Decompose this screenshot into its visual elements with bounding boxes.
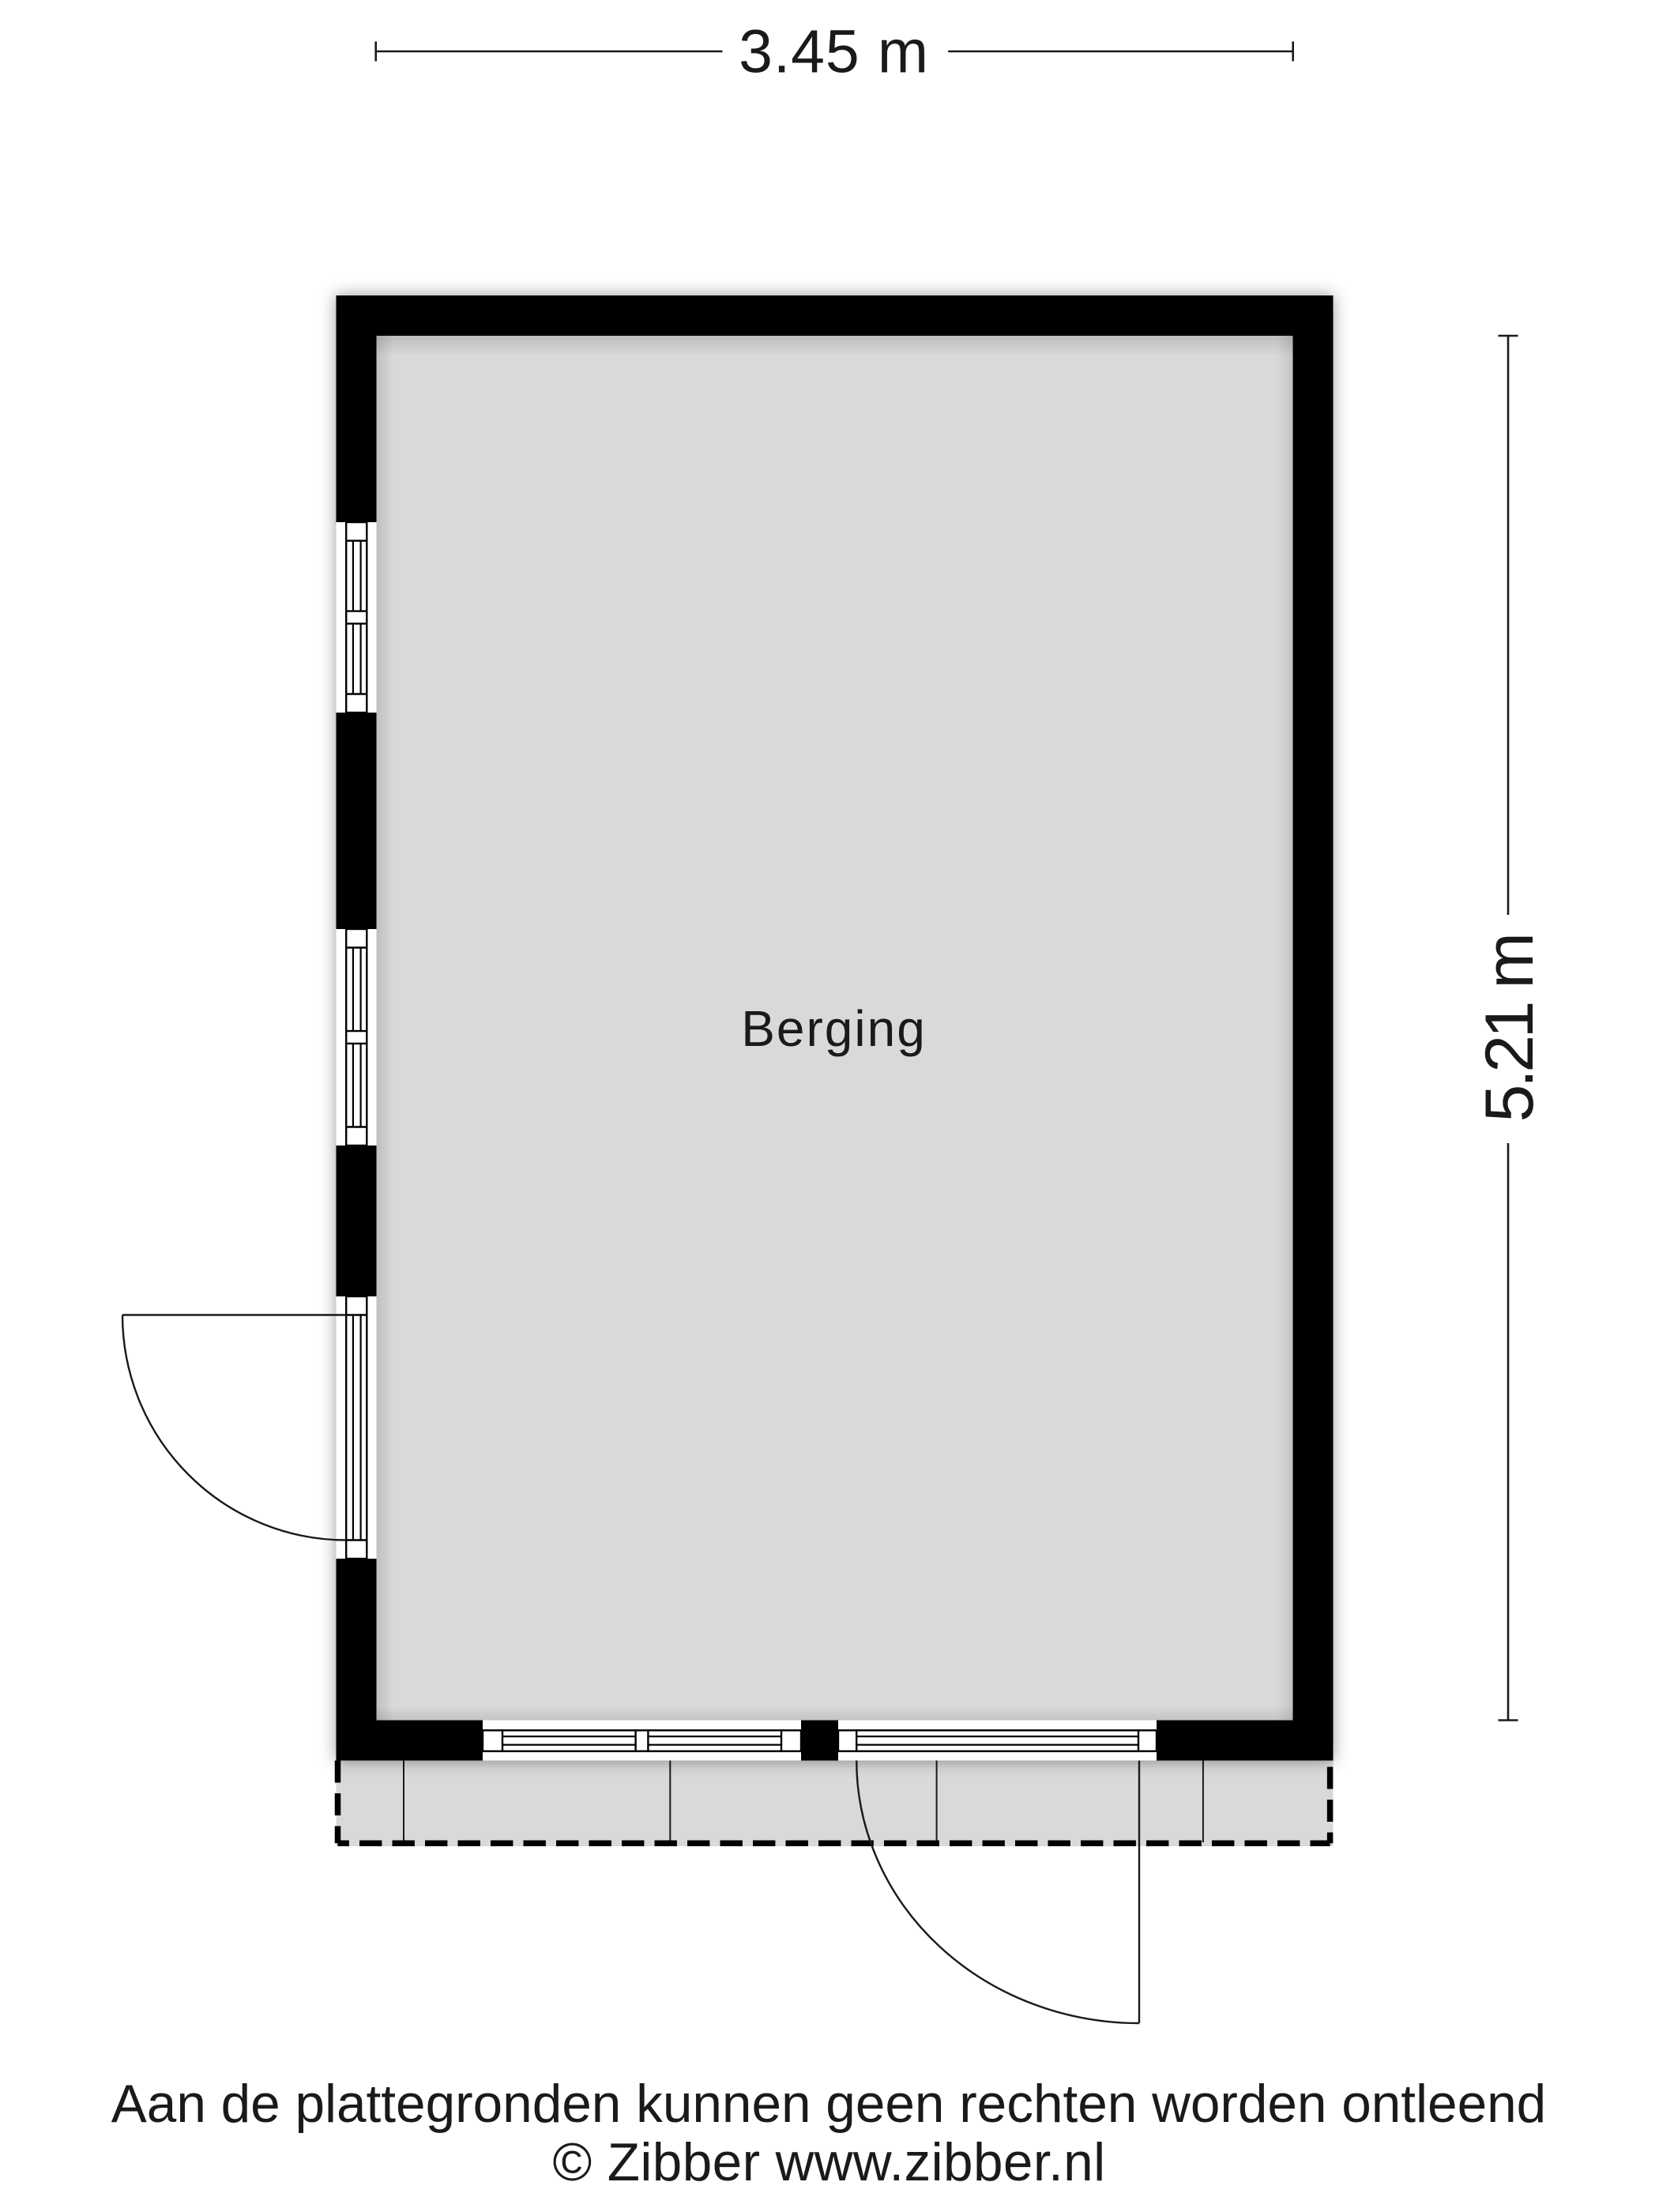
svg-text:Aan de plattegronden kunnen ge: Aan de plattegronden kunnen geen rechten…: [111, 2075, 1546, 2134]
svg-text:3.45 m: 3.45 m: [739, 18, 929, 86]
svg-text:5.21 m: 5.21 m: [1472, 936, 1548, 1123]
svg-text:© Zibber www.zibber.nl: © Zibber www.zibber.nl: [552, 2133, 1105, 2192]
svg-text:Berging: Berging: [741, 1000, 927, 1057]
